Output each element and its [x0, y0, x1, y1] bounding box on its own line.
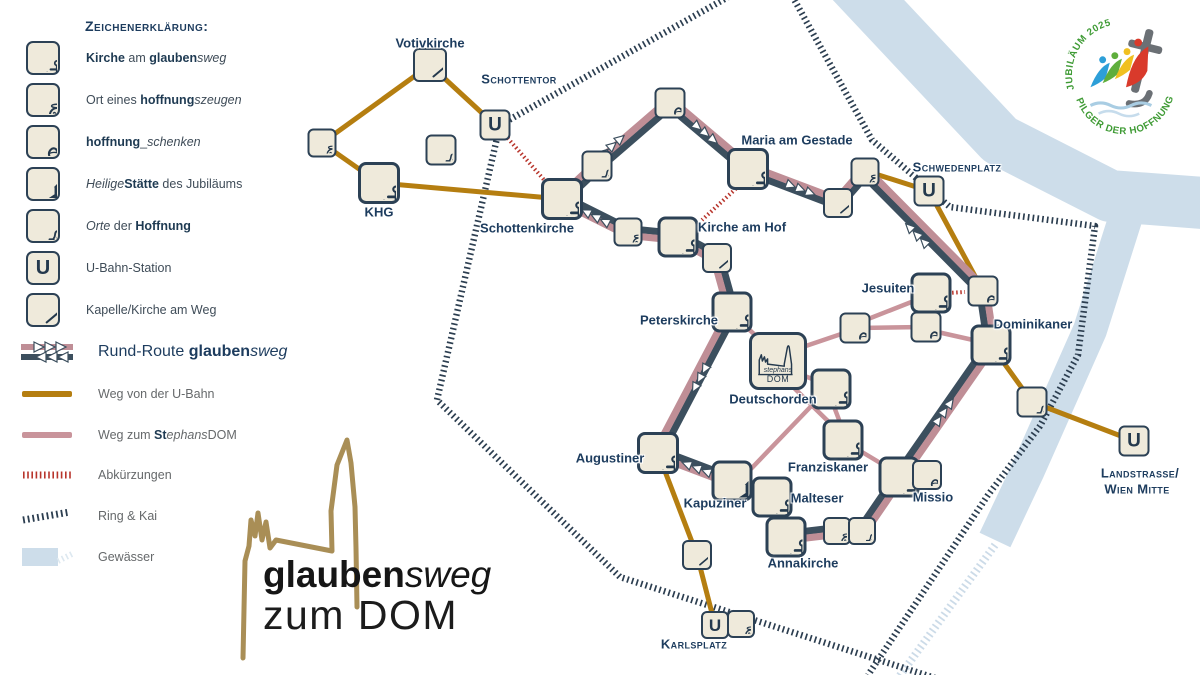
- kirche-icon: [737, 315, 749, 328]
- dom-icon-dom-text: DOM: [752, 374, 804, 384]
- label-malteser: Malteser: [791, 491, 844, 506]
- label-annakirche: Annakirche: [768, 556, 839, 571]
- node-hoffnung-land: [1017, 387, 1048, 418]
- node-hoffnung-anna: [848, 517, 876, 545]
- node-malteser: [752, 477, 793, 518]
- label-wien-mitte: Wien Mitte: [1104, 482, 1169, 497]
- node-schottenkirche: [541, 178, 583, 220]
- brand-title: glaubensweg zum DOM: [263, 556, 491, 637]
- zeuge-icon: [633, 235, 638, 242]
- node-votivkirche: [413, 48, 447, 82]
- label-votivkirche: Votivkirche: [395, 36, 464, 51]
- label-maria-am-gestade: Maria am Gestade: [741, 133, 852, 148]
- label-deutschorden: Deutschorden: [729, 392, 816, 407]
- node-kapelle-sued: [682, 540, 712, 570]
- label-schottentor: Schottentor: [481, 72, 556, 87]
- staette-icon: [737, 477, 748, 497]
- label-kirche-am-hof: Kirche am Hof: [698, 220, 786, 235]
- label-jesuiten: Jesuiten: [862, 281, 915, 296]
- node-annakirche: [766, 517, 807, 558]
- node-landstrasse-u: U: [1119, 426, 1150, 457]
- kirche-icon: [848, 443, 860, 456]
- label-dominikaner: Dominikaner: [994, 317, 1073, 332]
- node-herz-jesuiten: [911, 312, 942, 343]
- label-schottenkirche: Schottenkirche: [480, 221, 574, 236]
- node-kapelle-ost: [823, 188, 853, 218]
- u-bahn-glyph: U: [1127, 432, 1141, 451]
- u-bahn-glyph: U: [488, 116, 502, 135]
- kirche-icon: [567, 203, 579, 216]
- label-kapuziner: Kapuziner: [684, 496, 747, 511]
- zeuge-icon: [842, 534, 847, 541]
- node-zeuge-anna: [823, 517, 851, 545]
- label-peterskirche: Peterskirche: [640, 313, 718, 328]
- node-franziskaner: [823, 420, 864, 461]
- node-karlsplatz-u: U: [701, 611, 729, 639]
- kapelle-icon: [720, 261, 728, 269]
- kirche-icon: [384, 187, 396, 200]
- herz-icon: [931, 332, 938, 338]
- brand-sweg: sweg: [405, 554, 491, 595]
- label-landstrasse: Landstrasse/: [1101, 466, 1179, 481]
- node-herz-ost: [968, 276, 999, 307]
- kapelle-icon: [700, 558, 708, 566]
- label-franziskaner: Franziskaner: [788, 460, 868, 475]
- kirche-icon: [836, 392, 848, 405]
- node-hoffnung-votiv: [426, 135, 457, 166]
- herz-icon: [675, 108, 682, 114]
- zeuge-icon: [870, 175, 875, 182]
- kirche-icon: [936, 296, 948, 309]
- hoffnung-icon: [446, 154, 452, 161]
- node-jesuiten: [911, 273, 952, 314]
- label-missio: Missio: [913, 490, 953, 505]
- node-zeuge-schweden: [851, 158, 880, 187]
- node-herz-missio: [912, 460, 942, 490]
- node-schottentor-u: U: [480, 110, 511, 141]
- u-bahn-glyph: U: [922, 182, 936, 201]
- logo-pilgrim-figures: [1090, 39, 1148, 88]
- zeuge-icon: [746, 627, 751, 634]
- node-zeuge-hof: [614, 218, 643, 247]
- jubilee-2025-logo: JUBILÄUM 2025 PILGER DER HOFFNUNG: [1062, 12, 1188, 138]
- hoffnung-icon: [602, 170, 608, 177]
- node-kapelle-hof: [702, 243, 732, 273]
- kirche-icon: [996, 348, 1008, 361]
- node-dom: stephansDOM: [749, 332, 807, 390]
- node-schwedenplatz-u: U: [914, 176, 945, 207]
- kirche-icon: [683, 240, 695, 253]
- node-herz-mitte: [840, 313, 871, 344]
- brand-line1: glaubensweg: [263, 556, 491, 594]
- u-bahn-glyph: U: [709, 617, 721, 634]
- label-khg: KHG: [365, 205, 394, 220]
- label-schwedenplatz: Schwedenplatz: [913, 160, 1002, 175]
- dom-icon-stephans-text: stephans: [752, 367, 804, 374]
- herz-icon: [860, 333, 867, 339]
- kirche-icon: [663, 457, 675, 470]
- kapelle-icon: [841, 206, 849, 214]
- herz-icon: [932, 480, 938, 486]
- node-zeuge-karls: [727, 610, 755, 638]
- node-herz-nord: [655, 88, 686, 119]
- kapelle-icon: [433, 68, 443, 78]
- brand-line2: zum DOM: [263, 594, 491, 637]
- node-khg: [358, 162, 400, 204]
- brand-glauben: glauben: [263, 554, 405, 595]
- kirche-icon: [791, 540, 803, 553]
- hoffnung-icon: [1037, 406, 1043, 413]
- node-maria-am-gestade: [727, 148, 769, 190]
- herz-icon: [988, 296, 995, 302]
- node-hoffnung-nord: [582, 151, 613, 182]
- label-karlsplatz: Karlsplatz: [661, 637, 727, 652]
- node-zeuge-west: [308, 129, 337, 158]
- glaubensweg-map-poster: Zeichenerklärung: Kirche am glaubenswegO…: [0, 0, 1200, 675]
- label-augustiner: Augustiner: [576, 451, 645, 466]
- kirche-icon: [753, 173, 765, 186]
- kirche-icon: [777, 500, 789, 513]
- hoffnung-icon: [867, 535, 872, 541]
- node-kirche-am-hof: [658, 217, 699, 258]
- zeuge-icon: [327, 146, 332, 153]
